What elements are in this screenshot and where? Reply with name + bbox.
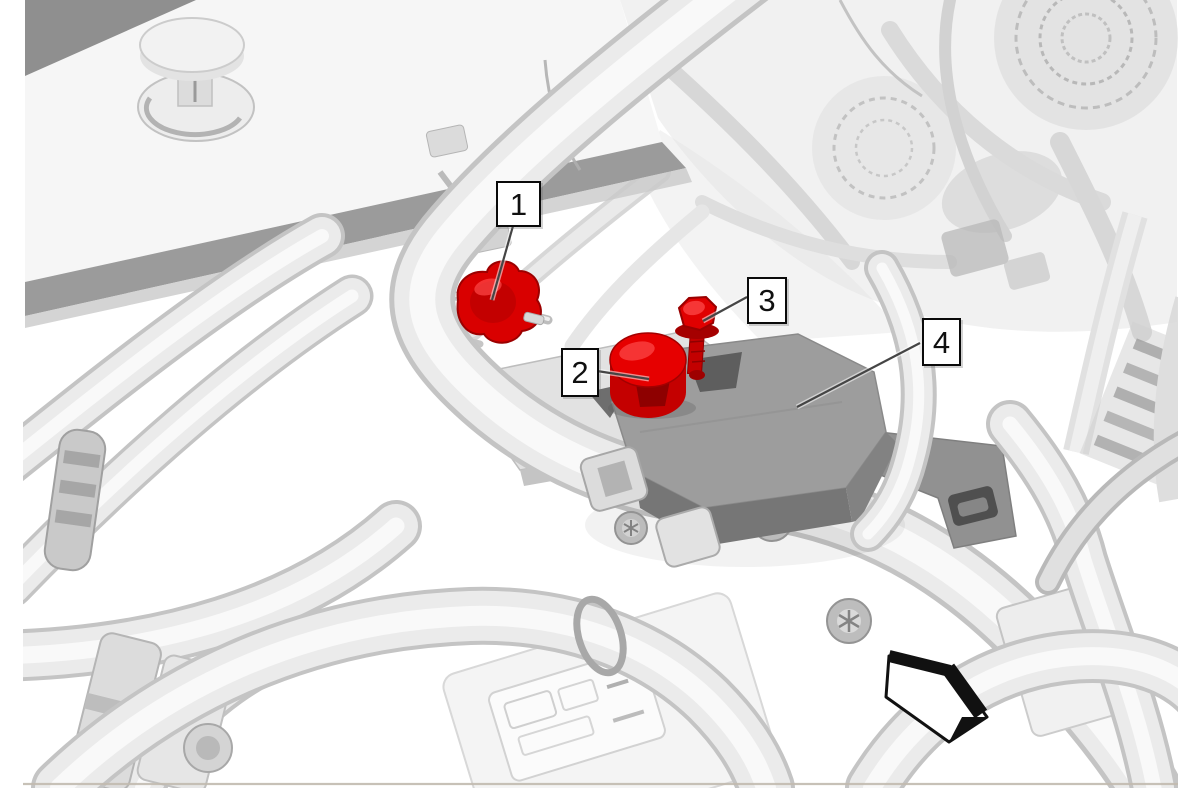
callout-2: 2 (561, 348, 599, 397)
callout-3: 3 (747, 277, 787, 324)
left-margin (0, 0, 23, 788)
callout-1-label: 1 (510, 189, 527, 220)
callout-1: 1 (496, 181, 541, 227)
callout-2-label: 2 (571, 357, 588, 388)
callout-3-label: 3 (758, 285, 775, 316)
engine-compartment-figure: 1 2 3 4 (0, 0, 1200, 788)
torx-screw (827, 599, 871, 643)
right-margin (1178, 0, 1200, 788)
callout-4: 4 (922, 318, 961, 366)
callout-4-label: 4 (933, 327, 950, 358)
engine-illustration (0, 0, 1200, 788)
